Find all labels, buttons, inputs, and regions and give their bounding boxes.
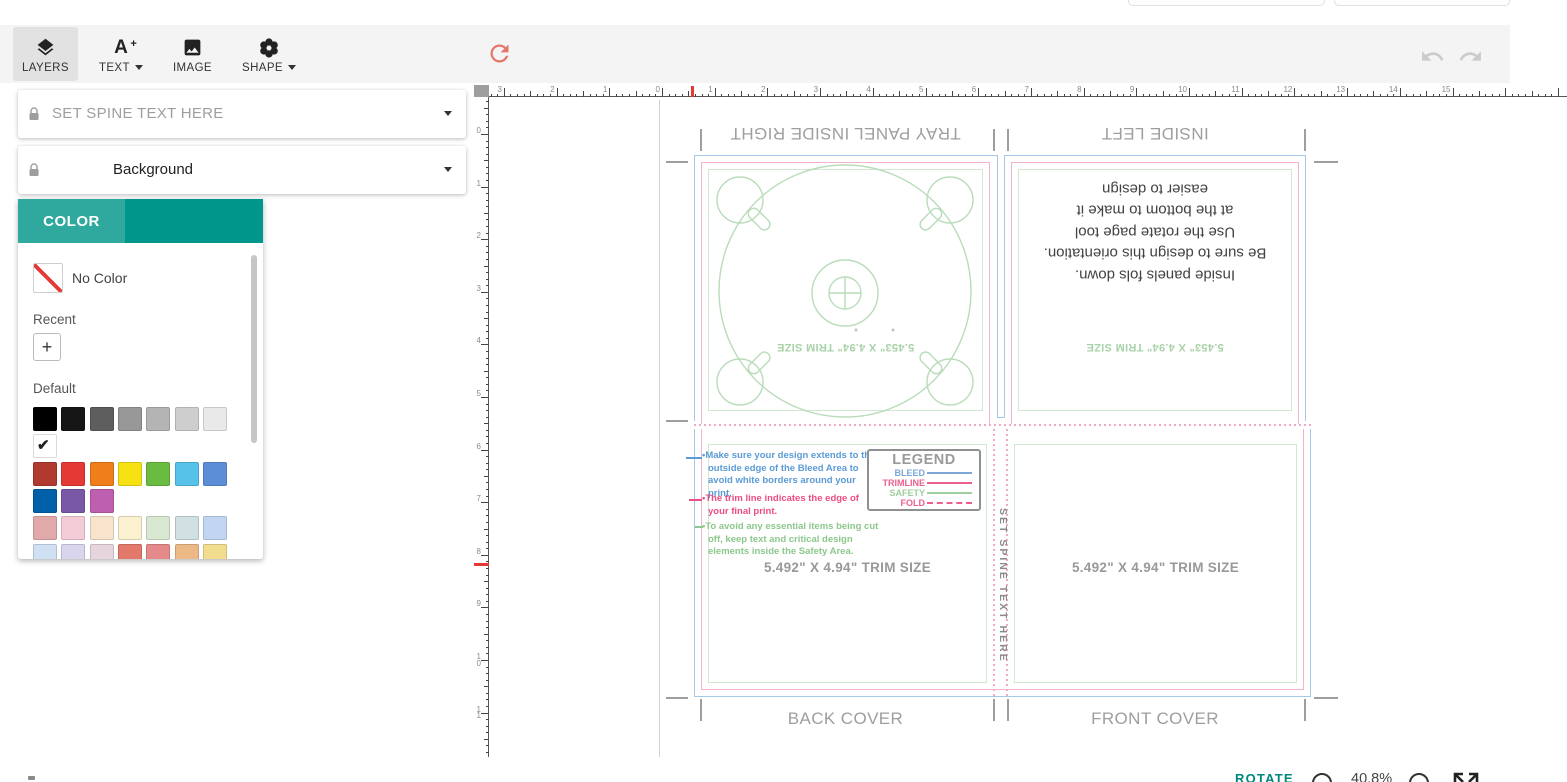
ruler-tick [486,173,489,174]
layers-label: LAYERS [22,62,69,74]
ruler-tick [1005,91,1006,97]
ruler-tick [1294,88,1295,97]
ruler-tick [486,410,489,411]
ruler-tick [1426,91,1427,97]
ruler-tick [486,496,489,497]
color-swatch[interactable] [203,544,227,560]
ruler-tick [945,94,946,98]
design-editor: LAYERS A+ TEXT IMAGE SHAPE [0,0,1567,782]
ruler-tick [1499,94,1500,98]
chevron-down-icon[interactable] [444,111,452,116]
ruler-tick [1532,91,1533,97]
legend-title: LEGEND [869,452,979,468]
zoom-level-value[interactable]: 40.8% [1351,771,1392,782]
ruler-tick [998,94,999,98]
ruler-tick [481,134,489,135]
crop-mark [1007,129,1009,151]
ruler-tick [1051,94,1052,98]
ruler-tick [1268,91,1269,97]
note-leader-line [695,526,703,528]
color-swatch[interactable]: ✔ [33,434,57,458]
ruler-tick [576,94,577,98]
ruler-label: 9 [474,601,481,608]
color-swatch[interactable] [33,544,57,560]
ruler-tick [1149,94,1150,98]
color-swatch[interactable] [203,462,227,486]
ruler-tick [486,575,489,576]
crop-mark [1314,697,1338,699]
color-panel-scrollbar[interactable] [251,255,257,443]
ruler-tick [939,94,940,98]
ruler-tick [484,213,490,214]
ruler-tick [1551,94,1552,98]
ruler-tick [616,94,617,98]
ruler-tick [486,285,489,286]
ruler-tick [642,94,643,98]
color-swatch[interactable] [175,516,199,540]
ruler-tick [1110,91,1111,97]
ruler-tick [702,94,703,98]
layer-item-spine-text[interactable]: SET SPINE TEXT HERE [18,90,466,138]
ruler-tick [1512,94,1513,98]
ruler-tick [486,489,489,490]
ruler-tick [1360,94,1361,98]
ruler-corner [474,85,489,97]
ruler-tick [486,509,489,510]
ruler-tick [543,94,544,98]
color-swatch[interactable] [61,544,85,560]
ruler-tick [754,94,755,98]
ruler-tick [484,318,490,319]
ruler-tick [486,206,489,207]
default-label: Default [33,381,76,396]
ruler-tick [486,219,489,220]
color-swatch[interactable] [33,516,57,540]
legend-entry: FOLD [873,498,972,508]
ruler-label: 1 [703,85,713,94]
ruler-tick [481,397,489,398]
ruler-label: 3 [492,85,502,94]
ruler-tick [486,358,489,359]
ruler-tick [1275,94,1276,98]
color-swatch[interactable] [146,544,170,560]
ruler-tick [840,94,841,98]
ruler-tick [486,522,489,523]
lock-icon [28,163,40,182]
ruler-label: 1 [597,85,607,94]
crop-mark [1304,699,1306,721]
lock-icon [28,107,40,126]
ruler-tick [486,482,489,483]
crop-mark [1314,161,1338,163]
ruler-tick [853,94,854,98]
ruler-label: 2 [474,233,481,240]
ruler-tick [486,298,489,299]
note-leader-line [689,499,702,501]
ruler-tick [486,351,489,352]
ruler-tick [774,94,775,98]
color-swatch[interactable] [90,407,114,431]
ruler-tick [486,377,489,378]
ruler-tick [486,680,489,681]
ruler-tick [636,91,637,97]
ruler-label: 5 [474,391,481,398]
ruler-tick [486,252,489,253]
ruler-tick [748,94,749,98]
ruler-tick [1248,94,1249,98]
color-swatch[interactable] [175,407,199,431]
ruler-tick [1538,94,1539,98]
zoom-out-icon[interactable] [1312,773,1332,782]
ruler-tick [958,94,959,98]
crop-mark [666,161,688,163]
ruler-tick [860,94,861,98]
color-swatch[interactable] [61,407,85,431]
ruler-tick [1136,88,1137,97]
layers-button[interactable]: LAYERS [13,27,78,81]
ruler-tick [596,94,597,98]
ruler-tick [1472,94,1473,98]
back-cover-title: BACK COVER [694,709,997,729]
ruler-tick [1031,88,1032,97]
crop-mark [1304,129,1306,151]
ruler-tick [675,94,676,98]
redo-button[interactable] [1458,44,1483,74]
ruler-tick [609,88,610,97]
image-icon [182,35,203,61]
ruler-tick [484,634,490,635]
ruler-tick [486,745,489,746]
ruler-tick [1373,91,1374,97]
ruler-tick [1130,94,1131,98]
ruler-tick [1439,94,1440,98]
ruler-tick [486,469,489,470]
legend-entry: TRIMLINE [873,478,972,488]
image-button[interactable]: IMAGE [164,27,221,81]
legend-entry-line [927,502,972,504]
ruler-tick [486,436,489,437]
ruler-tick [1380,94,1381,98]
ruler-tick [781,94,782,98]
refresh-icon [486,40,513,67]
ruler-label: 14 [1388,85,1398,94]
ruler-tick [486,167,489,168]
ruler-tick [537,94,538,98]
ruler-tick [1433,94,1434,98]
color-swatch[interactable] [61,489,85,513]
ruler-tick [1196,94,1197,98]
undo-icon [1420,44,1445,69]
ruler-tick [486,640,489,641]
ruler-tick [486,417,489,418]
document-origin-guide [659,100,660,757]
ruler-tick [978,88,979,97]
inside-left-trim-size-label: 5.453" X 4.94" TRIM SIZE [1018,341,1292,353]
ruler-label: 5 [914,85,924,94]
ruler-tick [807,94,808,98]
ruler-tick [486,193,489,194]
toolbar: LAYERS A+ TEXT IMAGE SHAPE [0,25,1510,83]
ruler-tick [1103,94,1104,98]
ruler-tick [486,561,489,562]
ruler-tick [1334,94,1335,98]
add-color-button[interactable]: + [33,333,61,361]
ruler-tick [1123,94,1124,98]
color-swatch[interactable] [90,462,114,486]
rotate-button[interactable]: ROTATE [1235,771,1294,782]
ruler-tick [1182,94,1183,98]
ruler-label: 11 [1230,85,1240,94]
ruler-tick [932,94,933,98]
ruler-tick [926,88,927,97]
text-add-icon: A+ [114,35,128,61]
ruler-tick [486,463,489,464]
ruler-tick [510,94,511,98]
legend-entry-label: FOLD [873,498,925,508]
ruler-tick [721,94,722,98]
ruler-tick [486,693,489,694]
ruler-tick [504,88,505,97]
ruler-tick [570,94,571,98]
ruler-tick [827,94,828,98]
color-swatch[interactable] [33,407,57,431]
tray-trim-size-label: 5.453" X 4.94" TRIM SIZE [708,341,983,353]
ruler-label: 9 [1124,85,1134,94]
ruler-tick [629,94,630,98]
spine-text-placeholder[interactable]: SET SPINE TEXT HERE [992,498,1009,673]
chevron-down-icon [135,65,143,70]
front-cover-trim-size-label: 5.492" X 4.94" TRIM SIZE [1014,560,1297,575]
ruler-tick [879,94,880,98]
ruler-tick [524,94,525,98]
ruler-tick [787,94,788,98]
undo-button[interactable] [1420,44,1445,74]
top-right-button-2[interactable] [1334,0,1510,6]
vertical-ruler-cursor-marker [474,563,489,566]
ruler-tick [622,94,623,98]
ruler-tick [583,91,584,97]
color-swatch[interactable] [146,407,170,431]
legend-entry-label: SAFETY [873,488,925,498]
color-swatch[interactable] [175,544,199,560]
ruler-tick [1235,94,1236,98]
shape-label: SHAPE [242,62,283,74]
ruler-tick [486,121,489,122]
no-color-label: No Color [72,270,127,286]
ruler-tick [1011,94,1012,98]
ruler-tick [833,94,834,98]
ruler-tick [484,686,490,687]
color-swatch[interactable] [90,544,114,560]
ruler-tick [1156,94,1157,98]
ruler-tick [486,653,489,654]
color-swatch[interactable] [118,516,142,540]
tab-color[interactable]: COLOR [18,199,125,243]
redo-icon [1458,44,1483,69]
layer-name: Background [98,161,208,178]
ruler-tick [550,94,551,98]
ruler-label: 6 [474,444,481,451]
ruler-label: 10 [1177,85,1187,94]
ruler-tick [688,91,689,97]
ruler-tick [486,226,489,227]
ruler-tick [912,94,913,98]
ruler-label: 10 [474,654,481,667]
ruler-label: 7 [1019,85,1029,94]
ruler-tick [972,94,973,98]
ruler-tick [767,88,768,97]
ruler-tick [991,94,992,98]
cd-tray-outline [694,155,997,421]
ruler-tick [1143,94,1144,98]
note-leader-line [686,457,702,459]
ruler-tick [486,338,489,339]
ruler-tick [1525,94,1526,98]
color-swatch[interactable] [118,407,142,431]
color-swatch[interactable] [118,544,142,560]
ruler-tick [814,94,815,98]
ruler-tick [1057,91,1058,97]
ruler-tick [486,200,489,201]
text-button[interactable]: A+ TEXT [90,27,152,81]
zoom-in-icon[interactable] [1409,773,1429,782]
ruler-tick [484,160,490,161]
color-swatch[interactable] [203,407,227,431]
color-swatch[interactable] [90,516,114,540]
color-swatch[interactable] [146,462,170,486]
ruler-tick [484,266,490,267]
ruler-tick [800,94,801,98]
ruler-tick [1387,94,1388,98]
ruler-tick [481,450,489,451]
shape-button[interactable]: SHAPE [233,27,305,81]
ruler-label: 8 [1072,85,1082,94]
ruler-tick [893,94,894,98]
ruler-tick [1413,94,1414,98]
chevron-down-icon[interactable] [444,167,452,172]
legend-box: LEGEND BLEEDTRIMLINESAFETYFOLD [867,449,981,511]
color-swatch[interactable] [175,462,199,486]
ruler-label: 1 [474,181,481,188]
color-swatch[interactable] [203,516,227,540]
ruler-tick [1406,94,1407,98]
ruler-tick [1077,94,1078,98]
shape-icon [258,35,280,61]
ruler-label: 0 [650,85,660,94]
ruler-tick [486,614,489,615]
inside-left-instructions: Inside panels fols down. Be sure to desi… [1018,178,1292,286]
refresh-button[interactable] [486,40,513,72]
ruler-tick [1215,91,1216,97]
ruler-label: 7 [474,496,481,503]
ruler-tick [1064,94,1065,98]
color-swatch[interactable] [33,462,57,486]
ruler-tick [820,88,821,97]
ruler-tick [715,88,716,97]
ruler-tick [1446,94,1447,98]
ruler-tick [708,94,709,98]
ruler-tick [486,430,489,431]
ruler-tick [484,581,490,582]
ruler-tick [873,88,874,97]
no-color-swatch[interactable] [33,263,63,293]
ruler-tick [1321,91,1322,97]
tray-panel-title: TRAY PANEL INSIDE RIGHT [694,123,997,143]
ruler-tick [1558,88,1559,97]
ruler-label: 0 [474,128,481,135]
ruler-tick [486,312,489,313]
ruler-tick [965,94,966,98]
legend-entry: BLEED [873,468,972,478]
ruler-tick [481,292,489,293]
ruler-tick [486,272,489,273]
color-swatch[interactable] [90,489,114,513]
fullscreen-icon[interactable] [1453,772,1479,782]
color-swatch[interactable] [61,516,85,540]
ruler-tick [486,331,489,332]
ruler-tick [734,94,735,98]
layer-item-background[interactable]: Background [18,146,466,194]
ruler-tick [1518,94,1519,98]
ruler-tick [1505,88,1506,97]
color-swatch[interactable] [61,462,85,486]
ruler-label: 15 [1441,85,1451,94]
ruler-tick [481,239,489,240]
ruler-tick [486,154,489,155]
ruler-tick [1420,94,1421,98]
color-swatch[interactable] [146,516,170,540]
ruler-tick [486,180,489,181]
ruler-tick [486,127,489,128]
top-right-button-1[interactable] [1128,0,1325,6]
chevron-down-icon [288,65,296,70]
ruler-tick [486,673,489,674]
ruler-tick [486,568,489,569]
ruler-tick [486,699,489,700]
ruler-label: 11 [474,707,481,720]
ruler-tick [1261,94,1262,98]
ruler-tick [1545,94,1546,98]
color-swatch[interactable] [33,489,57,513]
legend-entry-label: BLEED [873,468,925,478]
ruler-tick [486,246,489,247]
ruler-label: 4 [474,338,481,345]
ruler-tick [1222,94,1223,98]
guideline-note: •The trim line indicates the edge of you… [702,493,880,518]
front-cover-title: FRONT COVER [1004,709,1306,729]
ruler-tick [486,101,489,102]
crop-mark [700,699,702,721]
ruler-tick [985,94,986,98]
ruler-tick [866,94,867,98]
ruler-tick [486,667,489,668]
crop-mark [666,697,688,699]
color-swatch[interactable] [118,462,142,486]
ruler-tick [481,502,489,503]
image-label: IMAGE [173,62,212,74]
ruler-tick [486,390,489,391]
legend-entry-label: TRIMLINE [873,478,925,488]
vertical-ruler: 01234567891011 [474,97,489,757]
ruler-tick [1459,94,1460,98]
ruler-tick [1485,94,1486,98]
horizontal-ruler-cursor-marker [691,86,694,97]
ruler-tick [486,601,489,602]
ruler-tick [486,621,489,622]
ruler-tick [794,91,795,97]
layer-name: SET SPINE TEXT HERE [52,105,224,122]
ruler-tick [486,305,489,306]
